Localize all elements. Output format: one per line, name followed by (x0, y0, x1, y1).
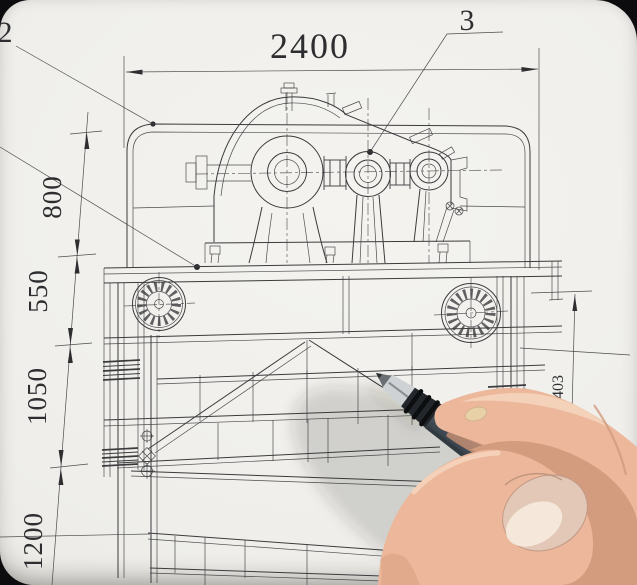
callout-label-2: 2 (0, 16, 13, 49)
anchor-bolts (210, 244, 448, 263)
dimension-label-1200: 1200 (18, 512, 48, 570)
dimension-label-2400: 2400 (270, 26, 350, 66)
callout-left-leader (0, 147, 200, 270)
gearbox-front-view (186, 83, 502, 263)
dimension-top-width: 2400 (124, 26, 539, 270)
callout-3: 3 (367, 4, 503, 155)
spring-stack-left-upper (103, 360, 140, 380)
photo-of-engineering-drawing: 2400 3 2 (0, 0, 637, 585)
engineering-drawing: 2400 3 2 (0, 0, 637, 585)
upper-frame (127, 124, 530, 268)
dimension-label-550: 550 (23, 269, 53, 313)
tie-rod-bolts (342, 101, 463, 215)
callout-label-3: 3 (460, 4, 475, 37)
dimension-label-1050: 1050 (22, 367, 52, 425)
dimension-label-800: 800 (37, 175, 67, 219)
